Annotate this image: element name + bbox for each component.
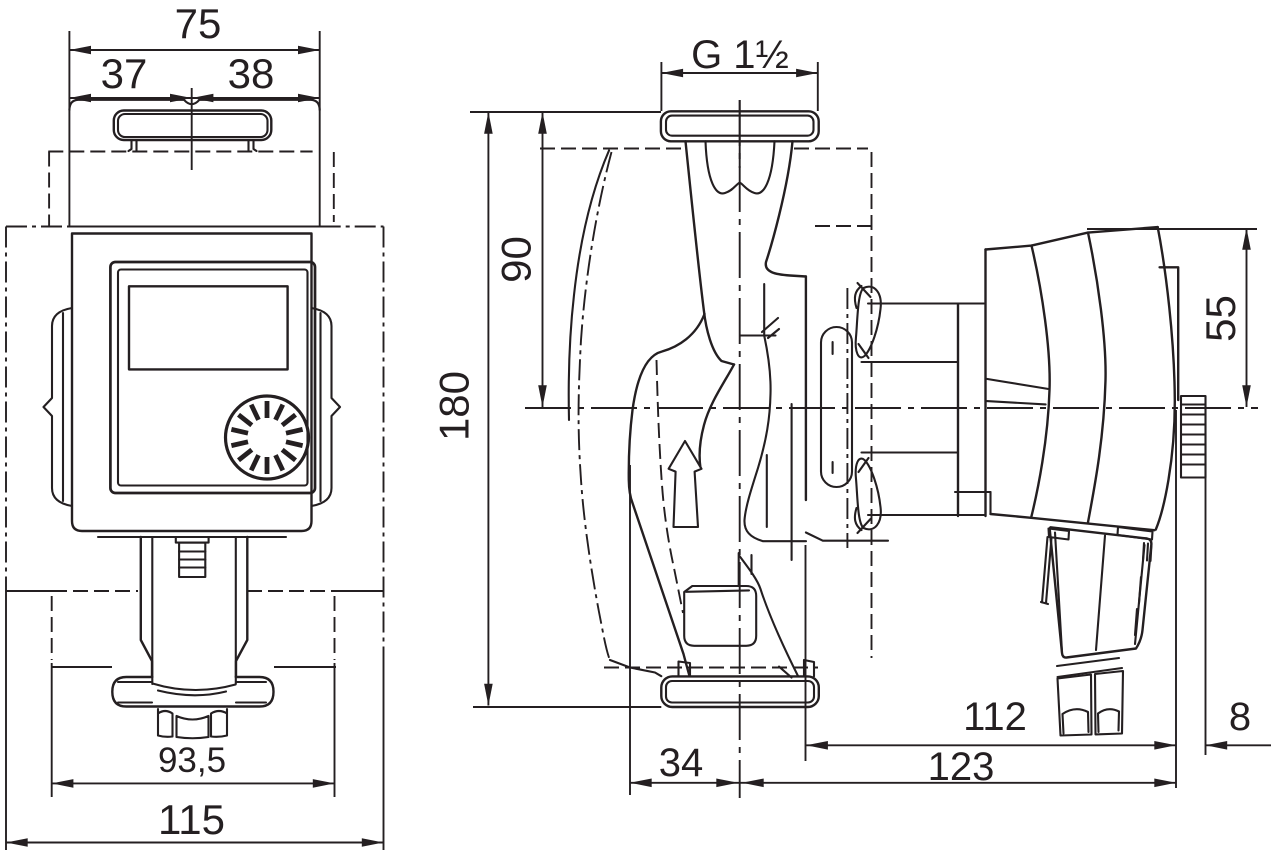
svg-text:75: 75 [175,0,222,47]
svg-text:G 1½: G 1½ [691,33,789,77]
svg-text:93,5: 93,5 [158,741,226,780]
svg-text:90: 90 [493,236,540,283]
svg-text:55: 55 [1197,295,1244,342]
svg-text:34: 34 [659,741,704,785]
svg-text:38: 38 [228,50,275,97]
svg-text:180: 180 [431,371,478,441]
svg-text:112: 112 [963,695,1027,739]
svg-text:37: 37 [101,50,148,97]
svg-text:115: 115 [158,796,225,843]
svg-text:8: 8 [1229,695,1251,739]
